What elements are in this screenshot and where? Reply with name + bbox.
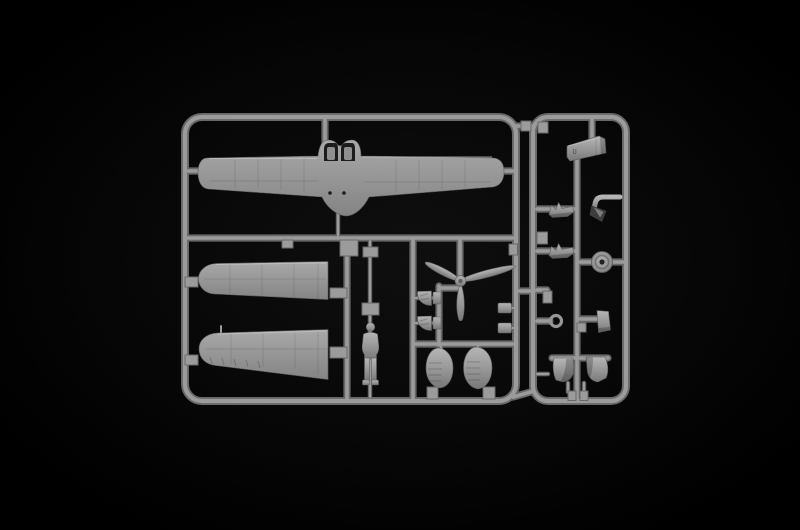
upper-wing-half-1-part (199, 262, 329, 300)
gear-leg-cover-1-part (553, 358, 574, 382)
seat-front (327, 147, 335, 160)
small-block-2 (433, 317, 441, 329)
sprue-photo: U (0, 0, 800, 530)
wheel-spat-2-part (464, 347, 493, 389)
gear-leg-cover-2-part (586, 357, 608, 382)
wheel-spat-1-part (426, 348, 453, 388)
side-fitting-1 (498, 303, 512, 313)
photo-stage: U (0, 0, 800, 530)
seat-rear (344, 147, 352, 160)
small-block-1 (433, 292, 441, 304)
side-fitting-2 (498, 323, 512, 333)
cowling-mark: U (573, 148, 577, 156)
main-wheel-part (592, 252, 613, 273)
background-vignette (0, 0, 800, 530)
trapezoid-fitting-part (597, 311, 611, 333)
